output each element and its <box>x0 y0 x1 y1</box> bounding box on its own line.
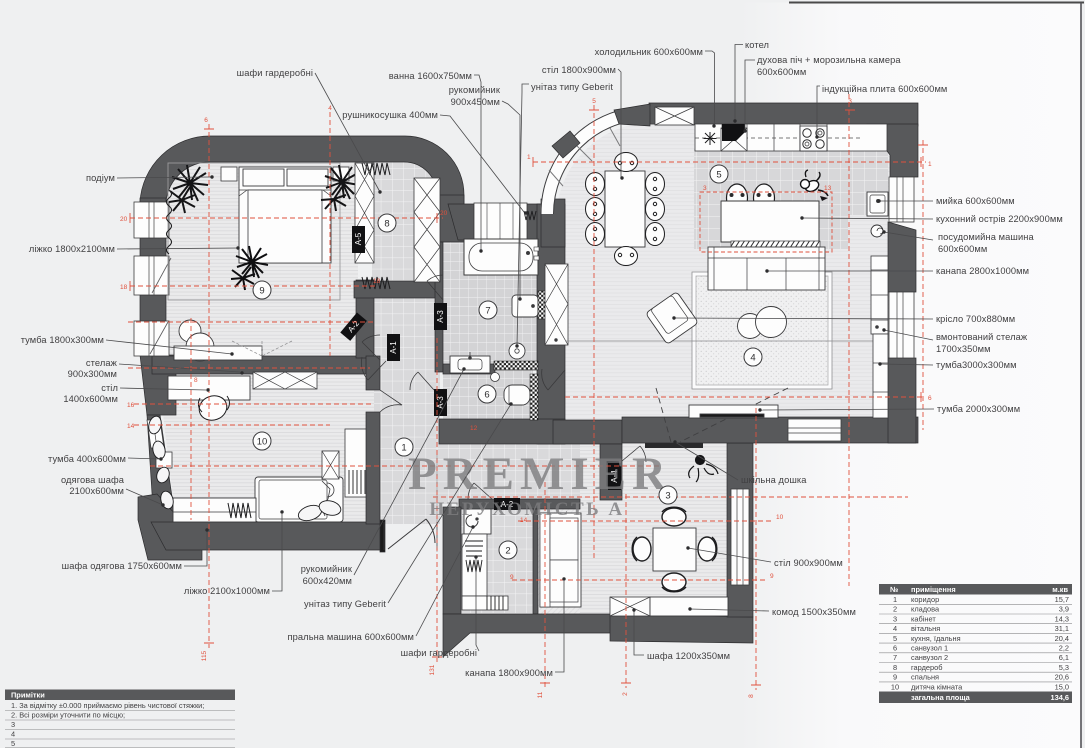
svg-text:2: 2 <box>622 692 629 696</box>
svg-text:А-1: А-1 <box>389 341 398 354</box>
svg-text:20,6: 20,6 <box>1055 673 1069 682</box>
svg-text:15,0: 15,0 <box>1055 682 1069 691</box>
svg-text:шафи гардеробні: шафи гардеробні <box>401 648 477 658</box>
svg-text:шкільна дошка: шкільна дошка <box>741 475 807 485</box>
svg-text:6: 6 <box>893 644 897 653</box>
svg-text:крісло 700х880мм: крісло 700х880мм <box>936 314 1015 324</box>
svg-text:тумба3000х300мм: тумба3000х300мм <box>936 360 1017 370</box>
svg-text:тумба 2000х300мм: тумба 2000х300мм <box>937 404 1020 414</box>
svg-text:3: 3 <box>665 491 670 502</box>
svg-text:дитяча кімната: дитяча кімната <box>911 682 963 691</box>
svg-text:8: 8 <box>194 377 198 384</box>
svg-text:6: 6 <box>204 117 208 124</box>
svg-text:20,4: 20,4 <box>1055 634 1069 643</box>
svg-text:НЕРУХОМІСТЬ А: НЕРУХОМІСТЬ А <box>429 499 624 520</box>
svg-text:рукомийник: рукомийник <box>449 85 501 95</box>
svg-text:канапа 2800х1000мм: канапа 2800х1000мм <box>936 266 1029 276</box>
svg-text:PREMIER: PREMIER <box>408 448 672 500</box>
svg-text:1: 1 <box>401 443 406 454</box>
svg-text:115: 115 <box>201 650 208 661</box>
svg-text:5: 5 <box>716 170 721 181</box>
svg-text:пральна машина 600х600мм: пральна машина 600х600мм <box>288 632 415 642</box>
svg-text:1: 1 <box>527 154 531 161</box>
svg-text:вітальня: вітальня <box>911 624 940 633</box>
svg-text:1400х600мм: 1400х600мм <box>63 394 118 404</box>
svg-text:ванна 1600х750мм: ванна 1600х750мм <box>389 71 472 81</box>
svg-text:тумба 1800х300мм: тумба 1800х300мм <box>21 335 104 345</box>
svg-text:шафа 1200х350мм: шафа 1200х350мм <box>647 651 730 661</box>
svg-text:канапа 1800х900мм: канапа 1800х900мм <box>465 668 553 678</box>
svg-text:600х600мм: 600х600мм <box>938 244 987 254</box>
svg-text:одягова шафа: одягова шафа <box>61 475 125 485</box>
svg-text:посудомийна машина: посудомийна машина <box>938 232 1035 242</box>
svg-text:1: 1 <box>893 595 897 604</box>
svg-text:600х420мм: 600х420мм <box>303 576 352 586</box>
svg-text:рукомийник: рукомийник <box>301 564 353 574</box>
svg-text:9: 9 <box>259 286 264 297</box>
svg-text:10: 10 <box>891 682 899 691</box>
svg-text:31,1: 31,1 <box>1055 624 1069 633</box>
svg-text:2,2: 2,2 <box>1059 644 1069 653</box>
svg-text:рушникосушка 400мм: рушникосушка 400мм <box>342 110 438 120</box>
svg-text:8: 8 <box>384 219 389 230</box>
svg-text:індукційна плита 600х600мм: індукційна плита 600х600мм <box>822 84 947 94</box>
svg-text:санвузол 2: санвузол 2 <box>911 653 948 662</box>
svg-text:унітаз типу Geberit: унітаз типу Geberit <box>531 82 613 92</box>
svg-text:мийка 600х600мм: мийка 600х600мм <box>936 196 1015 206</box>
svg-text:4: 4 <box>11 730 15 739</box>
svg-text:4: 4 <box>750 353 755 364</box>
svg-text:котел: котел <box>745 40 769 50</box>
svg-text:600х600мм: 600х600мм <box>757 67 806 77</box>
svg-text:14: 14 <box>127 423 135 430</box>
svg-text:спальня: спальня <box>911 673 939 682</box>
svg-text:1: 1 <box>928 161 932 168</box>
svg-text:стіл 900х900мм: стіл 900х900мм <box>774 558 843 568</box>
svg-text:8: 8 <box>748 694 755 698</box>
svg-text:приміщення: приміщення <box>911 585 956 594</box>
svg-text:3: 3 <box>893 614 897 623</box>
svg-text:кладова: кладова <box>911 605 940 614</box>
svg-text:2: 2 <box>893 605 897 614</box>
svg-text:6,1: 6,1 <box>1059 653 1069 662</box>
svg-text:стіл: стіл <box>101 383 118 393</box>
svg-text:7: 7 <box>485 306 490 317</box>
svg-text:18: 18 <box>373 278 381 285</box>
svg-text:кабінет: кабінет <box>911 614 936 623</box>
svg-text:12: 12 <box>470 425 478 432</box>
svg-text:стіл 1800х900мм: стіл 1800х900мм <box>542 65 616 75</box>
svg-text:загальна площа: загальна площа <box>911 693 971 702</box>
svg-text:4: 4 <box>893 624 897 633</box>
svg-text:15,7: 15,7 <box>1055 595 1069 604</box>
svg-text:13: 13 <box>824 185 832 192</box>
svg-text:1. За відмітку ±0.000 приймаєм: 1. За відмітку ±0.000 приймаємо рівень ч… <box>11 701 204 710</box>
svg-text:стелаж: стелаж <box>86 358 118 368</box>
svg-text:10: 10 <box>257 437 268 448</box>
svg-text:2: 2 <box>505 546 510 557</box>
svg-text:900х300мм: 900х300мм <box>68 369 117 379</box>
svg-text:А-5: А-5 <box>354 232 363 245</box>
svg-text:шафа одягова 1750х600мм: шафа одягова 1750х600мм <box>62 561 182 571</box>
svg-text:санвузол 1: санвузол 1 <box>911 644 948 653</box>
svg-text:духова піч + морозильна камера: духова піч + морозильна камера <box>757 55 901 65</box>
svg-text:Примітки: Примітки <box>11 691 45 700</box>
svg-text:11: 11 <box>537 691 544 698</box>
svg-text:вмонтований стелаж: вмонтований стелаж <box>936 332 1028 342</box>
svg-text:3: 3 <box>11 720 15 729</box>
svg-text:9: 9 <box>893 673 897 682</box>
svg-text:м.кв: м.кв <box>1052 585 1068 594</box>
svg-text:5: 5 <box>592 98 596 105</box>
svg-text:унітаз типу Geberit: унітаз типу Geberit <box>304 599 386 609</box>
svg-text:ліжко 1800х2100мм: ліжко 1800х2100мм <box>29 244 115 254</box>
svg-text:комод 1500х350мм: комод 1500х350мм <box>772 607 856 617</box>
svg-text:6: 6 <box>484 390 489 401</box>
svg-text:4: 4 <box>328 105 332 112</box>
svg-text:А-3: А-3 <box>436 310 445 323</box>
svg-text:3: 3 <box>703 185 707 192</box>
svg-text:кухонний острів 2200х900мм: кухонний острів 2200х900мм <box>936 214 1063 224</box>
svg-text:6: 6 <box>928 395 932 402</box>
svg-text:подіум: подіум <box>86 173 115 183</box>
svg-text:10: 10 <box>776 514 784 521</box>
svg-text:14,3: 14,3 <box>1055 614 1069 623</box>
svg-text:ліжко 2100х1000мм: ліжко 2100х1000мм <box>184 586 270 596</box>
svg-text:900х450мм: 900х450мм <box>451 97 500 107</box>
svg-text:18: 18 <box>120 284 128 291</box>
svg-text:коридор: коридор <box>911 595 939 604</box>
svg-text:2. Всі розміри уточнити по міс: 2. Всі розміри уточнити по місцю; <box>11 711 125 720</box>
svg-text:5,3: 5,3 <box>1059 663 1069 672</box>
svg-text:5: 5 <box>11 739 15 748</box>
svg-text:9: 9 <box>510 574 514 581</box>
svg-text:20: 20 <box>120 216 128 223</box>
svg-text:7: 7 <box>893 653 897 662</box>
svg-text:шафи гардеробні: шафи гардеробні <box>237 68 313 78</box>
svg-text:1700х350мм: 1700х350мм <box>936 344 991 354</box>
svg-text:холодильник 600х600мм: холодильник 600х600мм <box>595 47 703 57</box>
svg-text:тумба 400х600мм: тумба 400х600мм <box>48 454 126 464</box>
svg-text:кухня, їдальня: кухня, їдальня <box>911 634 961 643</box>
svg-text:131: 131 <box>429 664 436 675</box>
svg-text:134,6: 134,6 <box>1051 693 1070 702</box>
svg-text:9: 9 <box>770 573 774 580</box>
svg-text:8: 8 <box>893 663 897 672</box>
svg-text:16: 16 <box>127 402 135 409</box>
svg-text:гардероб: гардероб <box>911 663 942 672</box>
svg-text:5: 5 <box>893 634 897 643</box>
svg-text:20: 20 <box>440 210 448 217</box>
svg-text:№: № <box>890 585 898 594</box>
svg-text:3,9: 3,9 <box>1059 605 1069 614</box>
svg-text:2100х600мм: 2100х600мм <box>69 486 124 496</box>
svg-text:3: 3 <box>848 98 852 105</box>
